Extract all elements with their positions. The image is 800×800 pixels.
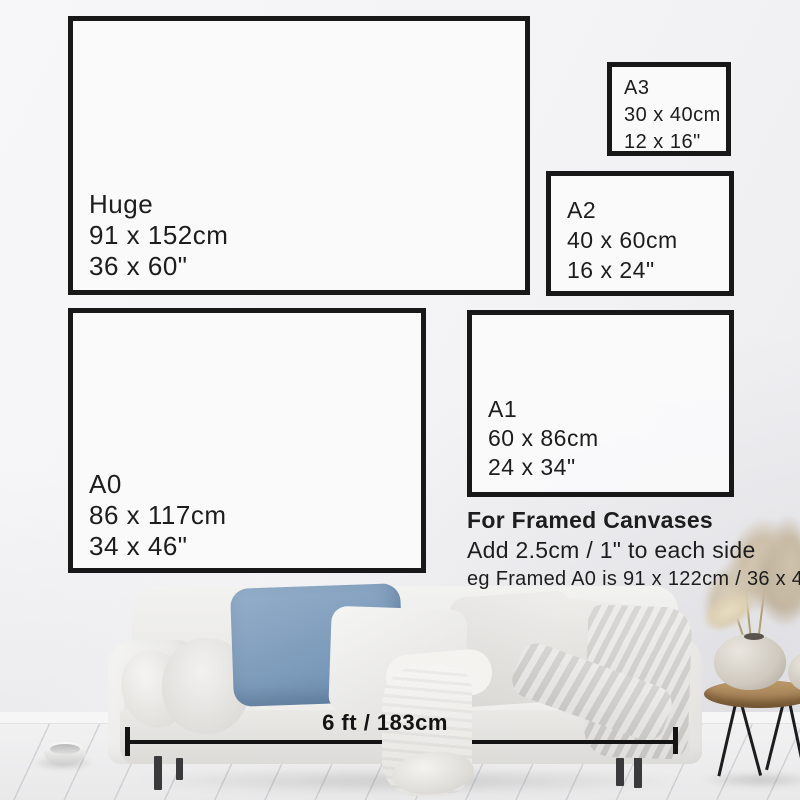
size-inches: 16 x 24" — [567, 255, 678, 285]
size-label-a2: A2 40 x 60cm 16 x 24" — [567, 195, 678, 285]
size-label-a1: A1 60 x 86cm 24 x 34" — [488, 395, 599, 482]
size-cm: 40 x 60cm — [567, 225, 678, 255]
size-box-a1: A1 60 x 86cm 24 x 34" — [467, 310, 734, 497]
size-cm: 86 x 117cm — [89, 500, 226, 531]
vase-mouth — [744, 633, 764, 640]
size-label-a0: A0 86 x 117cm 34 x 46" — [89, 469, 226, 562]
size-guide-image: Huge 91 x 152cm 36 x 60" A3 30 x 40cm 12… — [0, 0, 800, 800]
floor-dish-inner — [50, 744, 80, 754]
size-label-huge: Huge 91 x 152cm 36 x 60" — [89, 189, 228, 282]
size-name: A1 — [488, 395, 599, 424]
size-box-a3: A3 30 x 40cm 12 x 16" — [607, 62, 731, 156]
width-measure-label: 6 ft / 183cm — [260, 710, 510, 736]
size-box-a0: A0 86 x 117cm 34 x 46" — [68, 308, 426, 573]
size-box-a2: A2 40 x 60cm 16 x 24" — [546, 171, 734, 296]
size-inches: 34 x 46" — [89, 531, 226, 562]
note-example: eg Framed A0 is 91 x 122cm / 36 x 48" — [467, 565, 800, 593]
sofa-leg — [176, 758, 183, 780]
size-label-a3: A3 30 x 40cm 12 x 16" — [624, 75, 721, 156]
note-rule: Add 2.5cm / 1" to each side — [467, 535, 800, 565]
sofa-leg — [634, 756, 642, 788]
size-name: A0 — [89, 469, 226, 500]
sofa-leg — [154, 756, 162, 790]
size-name: A3 — [624, 75, 721, 102]
size-cm: 91 x 152cm — [89, 220, 228, 251]
note-title: For Framed Canvases — [467, 505, 800, 535]
framed-canvas-note: For Framed Canvases Add 2.5cm / 1" to ea… — [467, 505, 800, 593]
size-inches: 36 x 60" — [89, 251, 228, 282]
width-measure-cap-right — [673, 727, 678, 754]
size-box-huge: Huge 91 x 152cm 36 x 60" — [68, 16, 530, 295]
size-inches: 12 x 16" — [624, 129, 721, 156]
size-name: Huge — [89, 189, 228, 220]
sofa-leg — [616, 758, 624, 786]
size-inches: 24 x 34" — [488, 453, 599, 482]
size-cm: 30 x 40cm — [624, 102, 721, 129]
size-cm: 60 x 86cm — [488, 424, 599, 453]
size-name: A2 — [567, 195, 678, 225]
width-measure-cap-left — [125, 727, 130, 756]
vase-large — [714, 634, 786, 690]
